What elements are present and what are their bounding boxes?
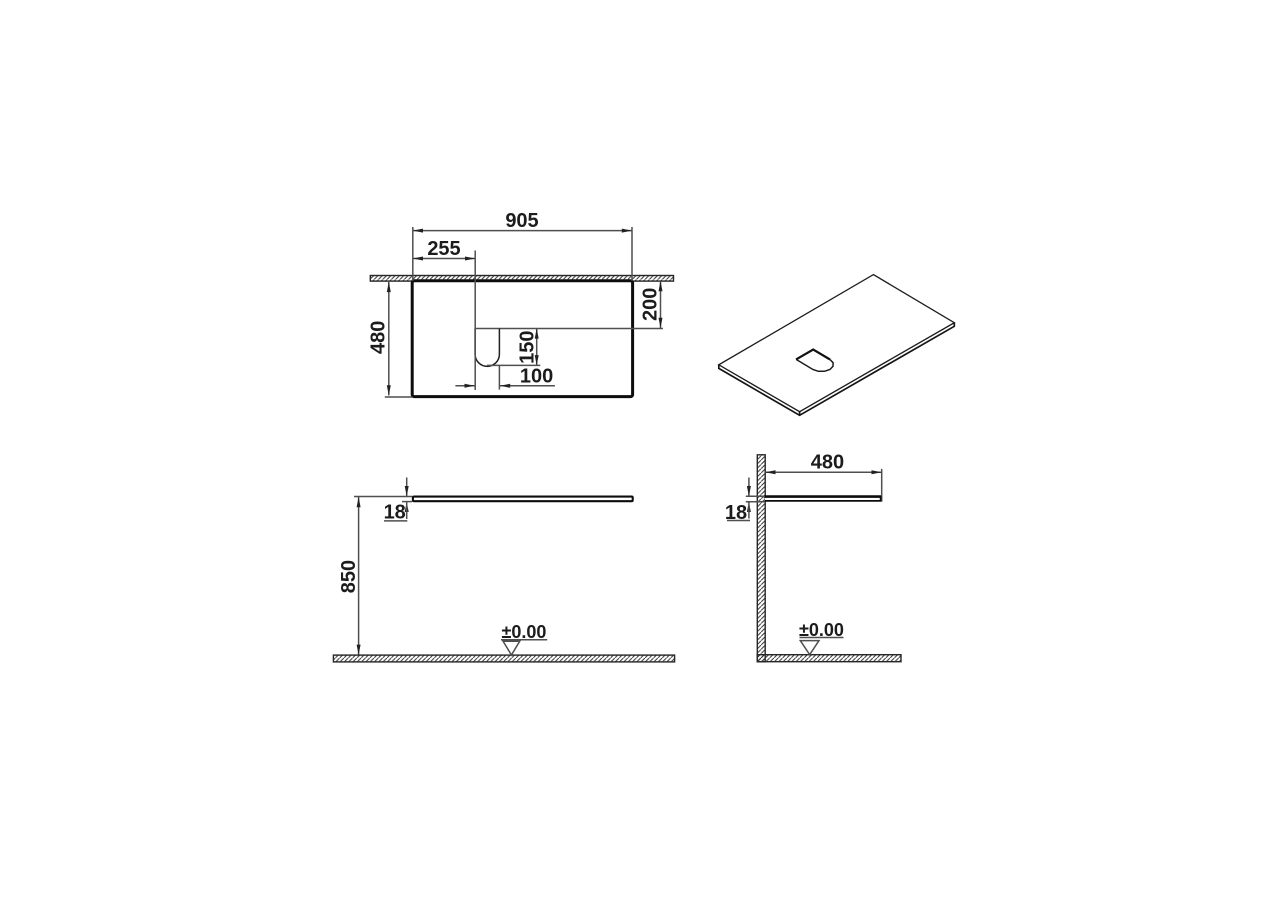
svg-text:480: 480 xyxy=(367,321,389,354)
svg-text:480: 480 xyxy=(811,452,844,474)
svg-text:255: 255 xyxy=(427,238,460,260)
svg-text:850: 850 xyxy=(338,560,360,593)
svg-text:200: 200 xyxy=(640,288,662,321)
svg-text:18: 18 xyxy=(384,501,406,523)
svg-text:100: 100 xyxy=(520,366,553,388)
svg-text:150: 150 xyxy=(516,331,538,364)
svg-text:905: 905 xyxy=(505,210,538,232)
